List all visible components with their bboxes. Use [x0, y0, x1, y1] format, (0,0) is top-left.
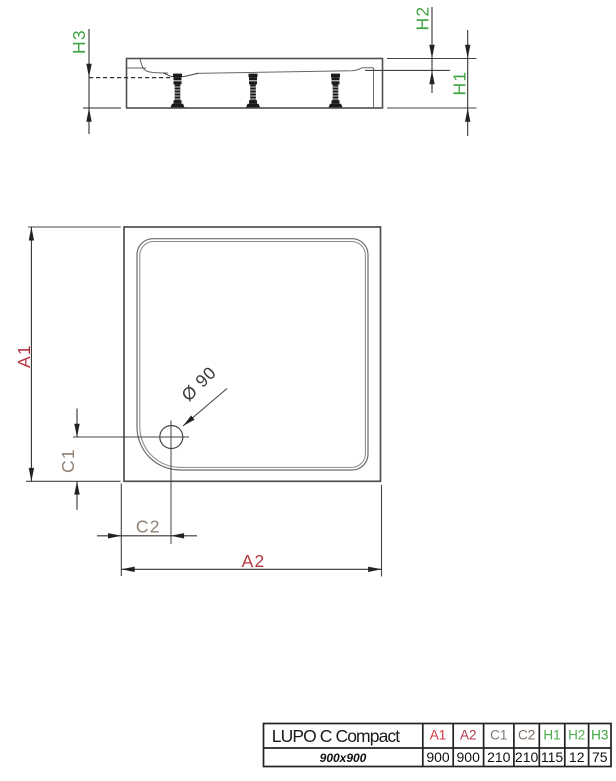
- svg-text:210: 210: [515, 749, 539, 765]
- svg-text:C2: C2: [518, 728, 535, 743]
- svg-text:H2: H2: [413, 6, 433, 31]
- svg-text:A1: A1: [430, 728, 447, 743]
- svg-text:75: 75: [592, 749, 608, 765]
- svg-text:C1: C1: [490, 728, 507, 743]
- svg-text:H3: H3: [69, 29, 89, 54]
- svg-text:LUPO C Compact: LUPO C Compact: [272, 726, 400, 746]
- svg-text:A2: A2: [242, 551, 266, 571]
- svg-text:900x900: 900x900: [320, 751, 367, 765]
- svg-text:H1: H1: [543, 728, 560, 743]
- svg-text:H3: H3: [591, 728, 608, 743]
- svg-text:115: 115: [541, 749, 564, 765]
- svg-text:900: 900: [457, 749, 481, 765]
- svg-text:H2: H2: [568, 728, 585, 743]
- svg-text:C2: C2: [136, 517, 161, 537]
- svg-text:210: 210: [487, 749, 511, 765]
- svg-text:C1: C1: [58, 448, 78, 473]
- svg-text:H1: H1: [450, 71, 470, 96]
- svg-text:12: 12: [569, 749, 585, 765]
- svg-text:A2: A2: [460, 728, 477, 743]
- svg-text:900: 900: [426, 749, 450, 765]
- svg-text:A1: A1: [14, 344, 34, 368]
